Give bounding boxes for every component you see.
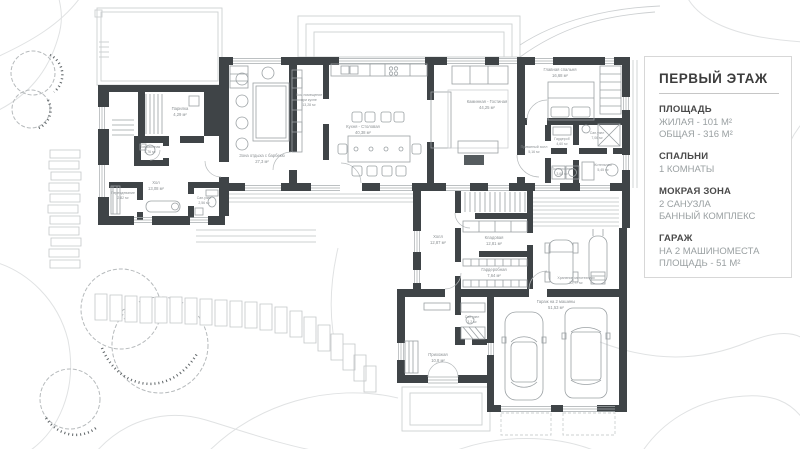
legend-wet-zone-banya: БАННЫЙ КОМПЛЕКС [659, 211, 779, 223]
legend-area-header: ПЛОЩАДЬ [659, 104, 779, 115]
room-label-master-bath: Сан.узел [590, 131, 605, 135]
room-area-wardrobe-room: 7,64 м² [487, 273, 501, 278]
legend-section-garage: ГАРАЖ НА 2 МАШИНОМЕСТА ПЛОЩАДЬ - 51 М² [659, 233, 779, 270]
room-label-storeroom: Кладовая [485, 235, 504, 240]
room-label-boiler: Котельная [595, 163, 612, 167]
paver-path [95, 294, 376, 392]
room-area-laundry: 3,68 м² [556, 172, 568, 176]
legend-panel: ПЕРВЫЙ ЭТАЖ ПЛОЩАДЬ ЖИЛАЯ - 101 М² ОБЩАЯ… [644, 56, 792, 278]
room-label-hol: Хол [152, 180, 160, 185]
room-area-parilka: 4,29 м² [173, 112, 187, 117]
room-label-pereodevanie: Переодевание [111, 191, 135, 195]
room-label-garage: Гараж на 2 машины [537, 299, 576, 304]
floor-plan-sheet: Парилка 4,29 м² Помывочная 3,76 м² Хол 1… [0, 0, 800, 449]
legend-wet-zone-header: МОКРАЯ ЗОНА [659, 186, 779, 197]
room-label-moto-storage: Хранение мототехники [557, 276, 594, 280]
room-label-wardrobe-room: Гардеробная [481, 267, 506, 272]
room-label-sanuzel-sauna: Сан.узел [197, 196, 212, 200]
room-area-master-bedroom: 16,68 м² [552, 73, 569, 78]
furniture [111, 64, 621, 400]
room-area-kitchen-dining: 40,38 м² [355, 130, 372, 135]
legend-garage-area: ПЛОЩАДЬ - 51 М² [659, 258, 779, 270]
legend-area-living: ЖИЛАЯ - 101 М² [659, 117, 779, 129]
room-label-utility-kitchen-2: при кухне [301, 98, 317, 102]
room-area-sanuzel-sauna: 2,56 м² [198, 201, 210, 205]
room-area-garage-wc: 3,2 м² [467, 320, 477, 324]
room-area-hol: 13,08 м² [148, 186, 165, 191]
room-area-entry-hall: 10,8 м² [431, 358, 445, 363]
legend-title: ПЕРВЫЙ ЭТАЖ [659, 71, 779, 86]
room-label-laundry: Постирочная [551, 167, 572, 171]
room-label-kitchen-dining: Кухня - Столовая [346, 124, 380, 129]
room-area-moto-storage: 22,77 м² [569, 281, 583, 285]
room-label-lounge-bbq: Зона отдыха с барбекю [239, 153, 285, 158]
legend-wet-zone-bathrooms: 2 САНУЗЛА [659, 199, 779, 211]
room-area-garage: 51,53 м² [548, 305, 565, 310]
legend-garage-cars: НА 2 МАШИНОМЕСТА [659, 246, 779, 258]
room-label-entry-hall: Прихожая [428, 352, 447, 357]
legend-area-total: ОБЩАЯ - 316 М² [659, 129, 779, 141]
room-label-garderob: Гардероб [554, 137, 569, 141]
legend-section-bedrooms: СПАЛЬНИ 1 КОМНАТЫ [659, 151, 779, 176]
room-area-pereodevanie: 2,82 м² [117, 196, 129, 200]
legend-divider [659, 93, 779, 94]
room-area-living: 44,25 м² [479, 105, 496, 110]
legend-section-area: ПЛОЩАДЬ ЖИЛАЯ - 101 М² ОБЩАЯ - 316 М² [659, 104, 779, 141]
room-area-utility-kitchen: 13,28 м² [302, 103, 316, 107]
room-area-private-hall: 5,16 м² [528, 150, 540, 154]
room-area-master-bath: 7,06 м² [591, 136, 603, 140]
room-area-storeroom: 12,81 м² [486, 241, 503, 246]
legend-section-wet-zone: МОКРАЯ ЗОНА 2 САНУЗЛА БАННЫЙ КОМПЛЕКС [659, 186, 779, 223]
room-area-lounge-bbq: 27,3 м² [255, 159, 269, 164]
room-label-utility-kitchen: Хоз. помещение [296, 93, 323, 97]
legend-bedrooms-header: СПАЛЬНИ [659, 151, 779, 162]
room-area-hall: 12,87 м² [430, 240, 447, 245]
room-label-hall: Холл [433, 234, 443, 239]
room-label-master-bedroom: Главная спальня [544, 67, 577, 72]
room-label-parilka: Парилка [172, 106, 189, 111]
room-area-pomyvochnaya: 3,76 м² [144, 150, 156, 154]
room-area-garderob: 4,60 м² [556, 142, 568, 146]
room-label-living: Каминная - Гостиная [467, 99, 508, 104]
garden-steps [48, 150, 81, 268]
room-label-pomyvochnaya: Помывочная [140, 145, 161, 149]
legend-garage-header: ГАРАЖ [659, 233, 779, 244]
room-label-private-hall: Приватный холл [521, 145, 548, 149]
legend-bedrooms-count: 1 КОМНАТЫ [659, 164, 779, 176]
room-label-garage-wc: Сан.узел [465, 315, 480, 319]
room-area-boiler: 5,45 м² [597, 168, 609, 172]
